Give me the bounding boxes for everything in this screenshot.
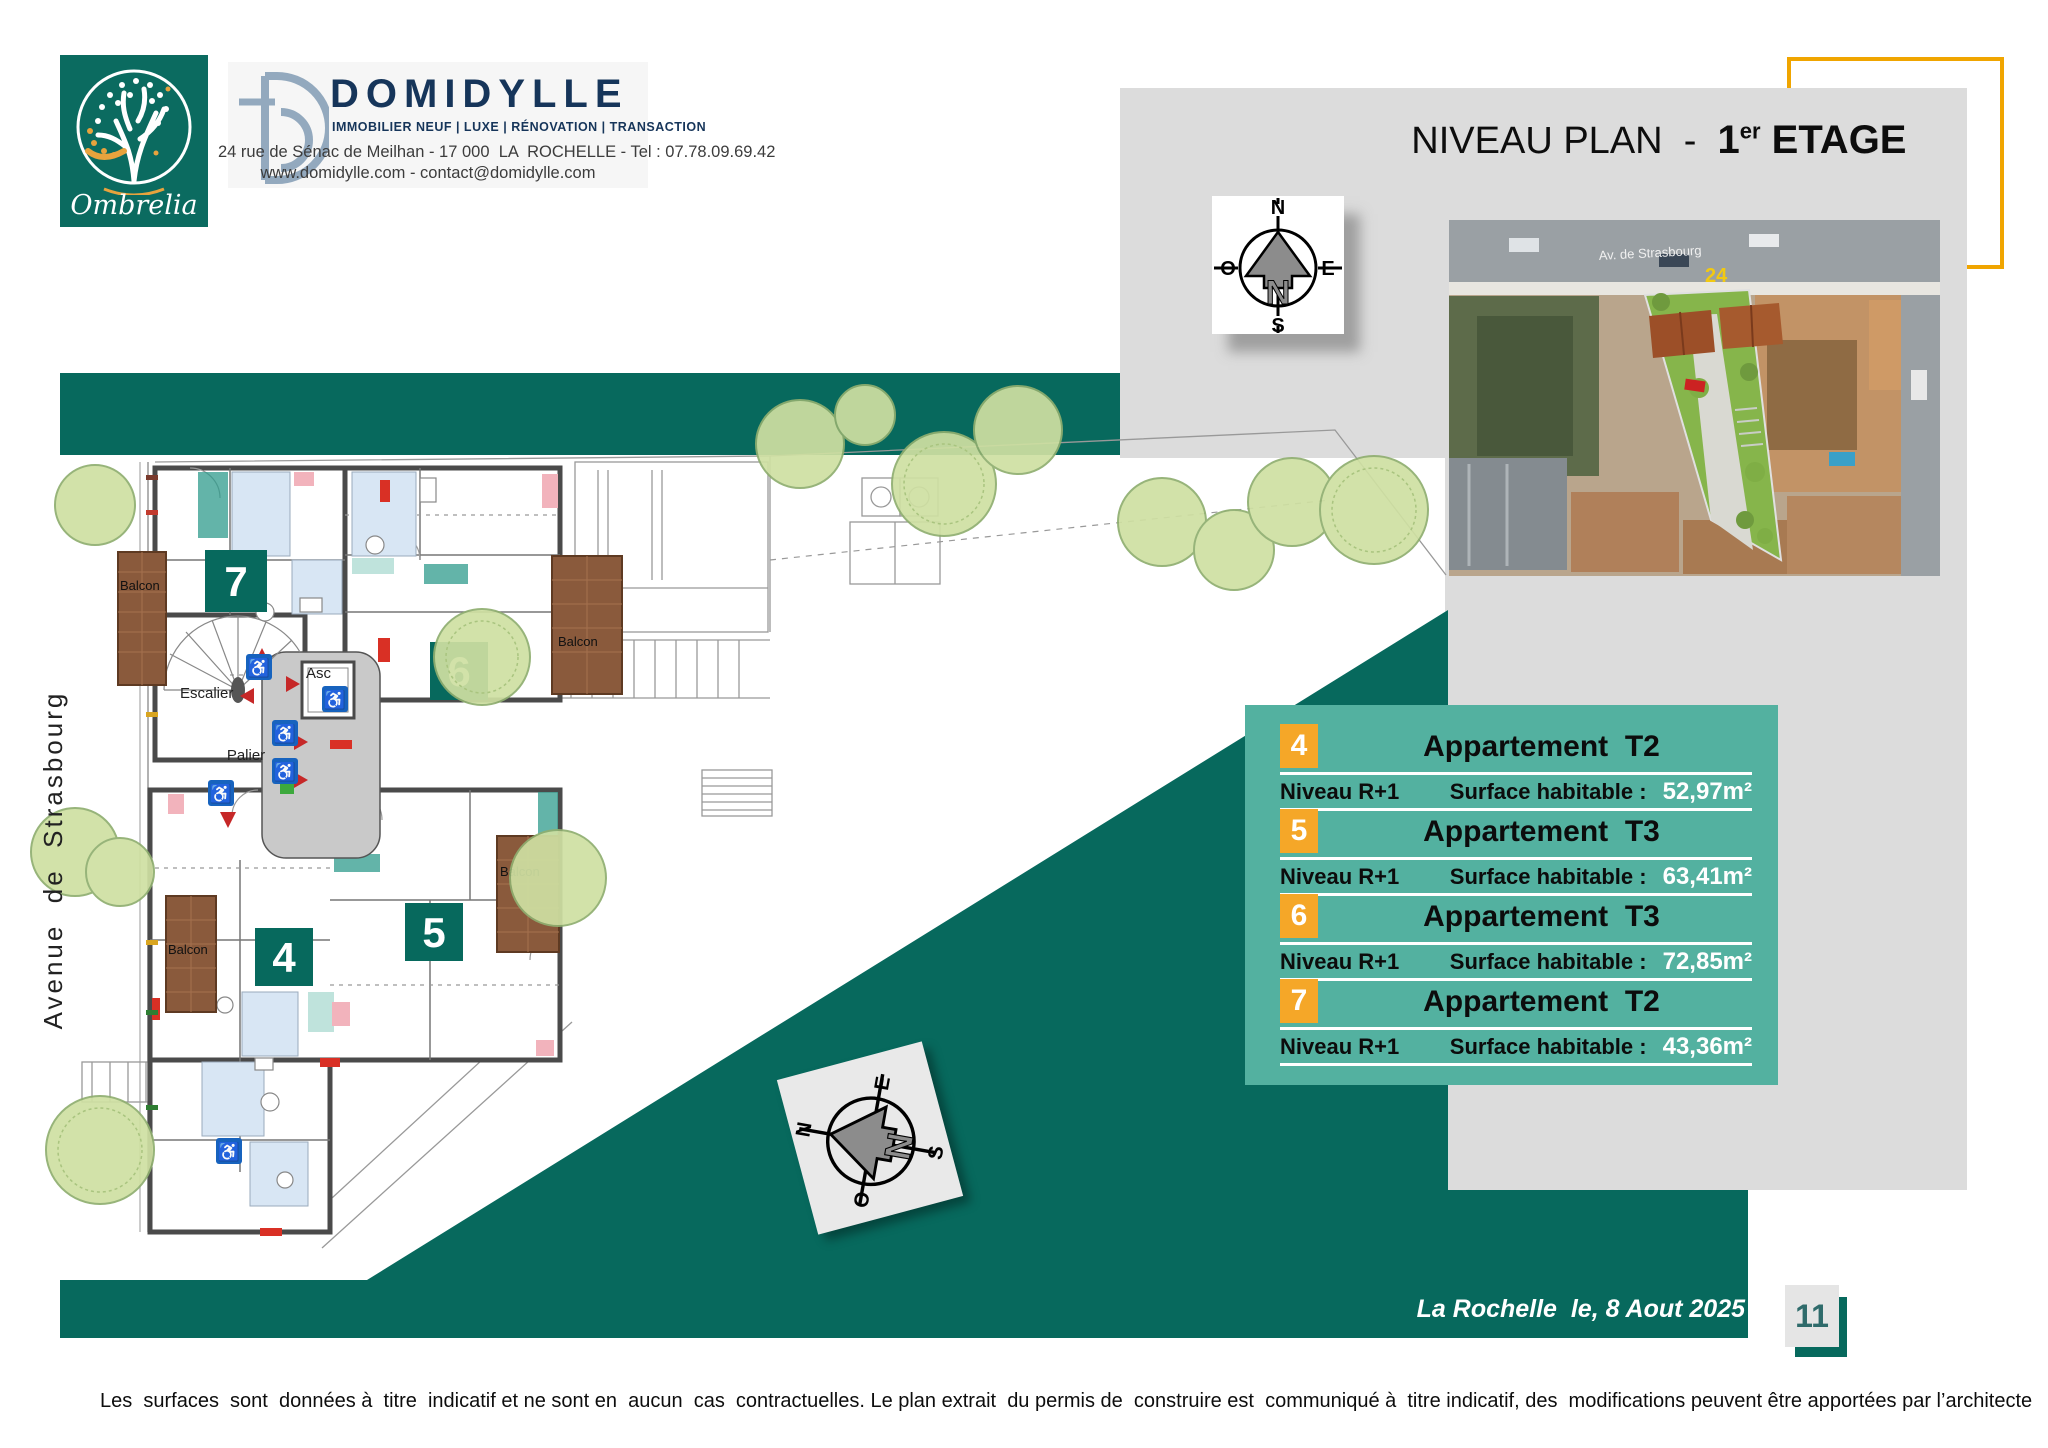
apartment-level: Niveau R+1	[1280, 949, 1399, 975]
agency-tagline: IMMOBILIER NEUF | LUXE | RÉNOVATION | TR…	[332, 120, 706, 134]
compass-e-label: E	[1321, 258, 1334, 280]
apartment-level: Niveau R+1	[1280, 1034, 1399, 1060]
surface-value: 43,36m²	[1663, 1033, 1752, 1060]
teal-top-band	[60, 373, 1120, 455]
page-number: 11	[1785, 1285, 1839, 1347]
surface-value: 63,41m²	[1663, 863, 1752, 890]
apartment-title: Appartement T3	[1335, 900, 1748, 934]
ombrelia-logo: Ombrelia	[60, 55, 208, 227]
agency-name: DOMIDYLLE	[330, 72, 629, 117]
surface-value: 72,85m²	[1663, 948, 1752, 975]
asc-label: Asc	[306, 665, 332, 682]
aerial-photo: Av. de Strasbourg 24	[1449, 220, 1940, 576]
balcon-label-3: Balcon	[500, 864, 540, 879]
svg-text:N: N	[791, 1120, 816, 1139]
aerial-street-number: 24	[1705, 265, 1728, 287]
surface-label: Surface habitable :	[1450, 779, 1647, 804]
apartment-title: Appartement T2	[1335, 985, 1748, 1019]
agency-address-line2: www.domidylle.com - contact@domidylle.co…	[218, 163, 638, 184]
svg-text:♿: ♿	[274, 761, 296, 782]
compass-o-label: O	[1220, 258, 1236, 280]
svg-text:6: 6	[447, 648, 470, 695]
svg-text:S: S	[924, 1144, 949, 1161]
surface-label: Surface habitable :	[1450, 864, 1647, 889]
escalier-label: Escalier	[180, 685, 233, 702]
palier-label: Palier	[227, 747, 265, 764]
apartment-row-6: 6 Appartement T3 Niveau R+1Surface habit…	[1245, 894, 1778, 979]
apartment-number-badge: 5	[1280, 809, 1318, 853]
compass-north: N S O E N	[1212, 196, 1344, 334]
wheelchair-icons: ♿ ♿ ♿ ♿ ♿ ♿	[208, 654, 348, 1164]
compass-s-label: S	[1271, 315, 1284, 334]
apartments-table: 4 Appartement T2 Niveau R+1Surface habit…	[1245, 705, 1778, 1085]
svg-text:O: O	[849, 1190, 874, 1210]
apartment-row-7: 7 Appartement T2 Niveau R+1Surface habit…	[1245, 979, 1778, 1064]
apartment-number-badge: 7	[1280, 979, 1318, 1023]
page-title: NIVEAU PLAN - 1er ETAGE	[1330, 100, 1970, 181]
date-line: La Rochelle le, 8 Aout 2025	[1100, 1295, 1745, 1324]
svg-text:E: E	[870, 1075, 895, 1092]
svg-text:7: 7	[224, 558, 247, 605]
apartment-level: Niveau R+1	[1280, 864, 1399, 890]
surface-label: Surface habitable :	[1450, 949, 1647, 974]
agency-address: 24 rue de Sénac de Meilhan - 17 000 LA R…	[218, 142, 638, 184]
street-label: Avenue de Strasbourg	[38, 691, 68, 1030]
disclaimer: Les surfaces sont données à titre indica…	[100, 1390, 1948, 1413]
page-title-level: 1er ETAGE	[1718, 118, 1907, 162]
svg-text:♿: ♿	[274, 723, 296, 744]
page-title-prefix: NIVEAU PLAN -	[1411, 120, 1717, 162]
svg-text:♿: ♿	[324, 689, 346, 710]
surface-value: 52,97m²	[1663, 778, 1752, 805]
compass-n-label: N	[1271, 197, 1285, 219]
svg-text:♿: ♿	[218, 1141, 240, 1162]
surface-label: Surface habitable :	[1450, 1034, 1647, 1059]
balcon-label-1: Balcon	[120, 578, 160, 593]
ombrelia-wordmark: Ombrelia	[60, 190, 208, 221]
apartment-row-4: 4 Appartement T2 Niveau R+1Surface habit…	[1245, 724, 1778, 809]
apartment-title: Appartement T2	[1335, 730, 1748, 764]
agency-address-line1: 24 rue de Sénac de Meilhan - 17 000 LA R…	[218, 142, 638, 163]
balcon-label-2: Balcon	[558, 634, 598, 649]
unit-badges: 7 6 5 4	[205, 550, 488, 986]
compass-rotated: N S O E N	[777, 1041, 963, 1234]
apartment-title: Appartement T3	[1335, 815, 1748, 849]
apartment-level: Niveau R+1	[1280, 779, 1399, 805]
compass-center-letter: N	[1266, 274, 1291, 312]
ombrelia-tree-icon	[60, 55, 208, 195]
page: Ombrelia DOMIDYLLE IMMOBILIER NEUF | LUX…	[0, 0, 2048, 1448]
svg-text:♿: ♿	[210, 783, 232, 804]
svg-text:4: 4	[272, 934, 296, 981]
apartment-row-5: 5 Appartement T3 Niveau R+1Surface habit…	[1245, 809, 1778, 894]
apartment-number-badge: 6	[1280, 894, 1318, 938]
balconies: Balcon Balcon Balcon Balcon	[118, 552, 622, 1012]
svg-text:5: 5	[422, 909, 445, 956]
trees	[31, 385, 1428, 1204]
balcon-label-4: Balcon	[168, 942, 208, 957]
apartment-number-badge: 4	[1280, 724, 1318, 768]
svg-text:♿: ♿	[248, 657, 270, 678]
